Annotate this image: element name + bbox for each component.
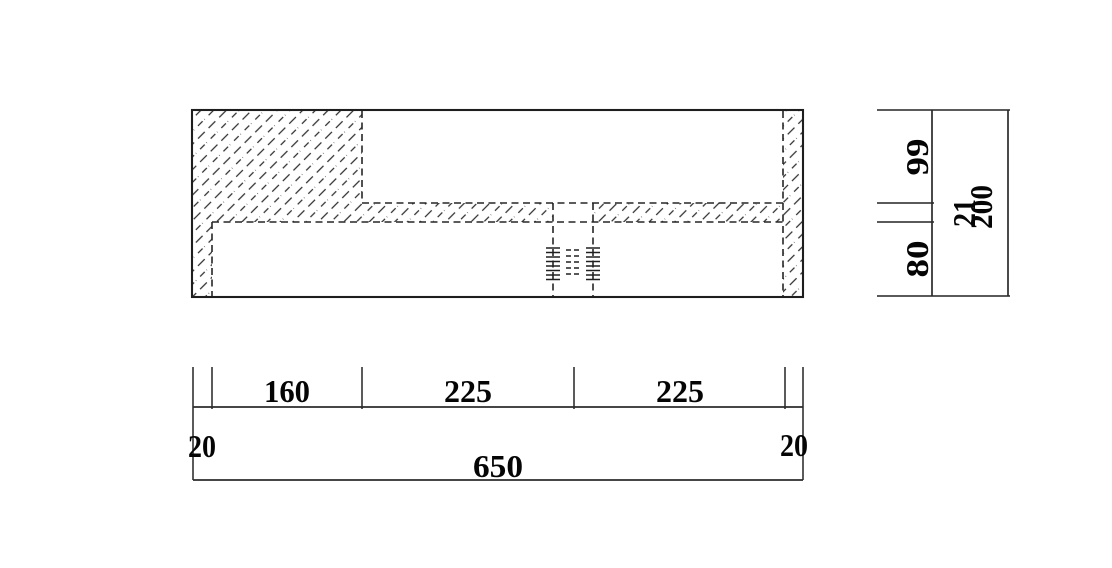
hatch-left-wall [193, 222, 212, 296]
hatch-shelf-right [593, 203, 783, 222]
dim-label-lower-height: 80 [899, 241, 935, 278]
right-dimensions: 99 80 21 200 [877, 110, 1010, 296]
dim-label-overall-height: 200 [963, 185, 999, 229]
thread-ticks-center [566, 250, 580, 274]
dim-label-left-bay: 225 [444, 373, 492, 409]
dim-label-block-width: 160 [264, 373, 310, 409]
front-section-view [192, 110, 803, 297]
drawing-canvas: 160 225 225 20 20 650 99 80 21 200 [0, 0, 1112, 568]
dim-label-left-wall: 20 [188, 428, 216, 464]
threaded-hole [546, 203, 600, 296]
dim-label-upper-height: 99 [899, 139, 935, 176]
hatch-shelf-left [362, 203, 553, 222]
bottom-dimensions: 160 225 225 20 20 650 [188, 367, 808, 484]
hatch-right-wall [783, 111, 802, 296]
dim-label-right-wall: 20 [780, 427, 808, 463]
hatch-top-left-block [193, 111, 362, 222]
dim-label-overall-width: 650 [473, 448, 523, 484]
technical-drawing: 160 225 225 20 20 650 99 80 21 200 [0, 0, 1112, 568]
dim-label-right-bay: 225 [656, 373, 704, 409]
